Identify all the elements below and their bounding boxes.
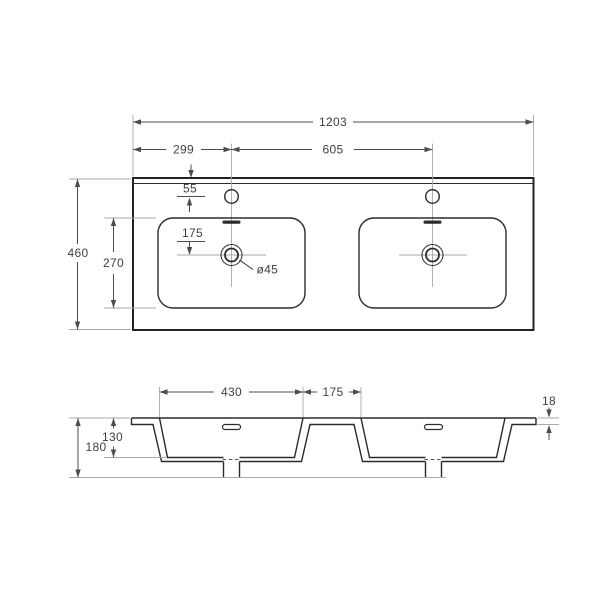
section-overflow-slot-left [223, 425, 241, 430]
dim-basin-width-and-gap: 430 175 [160, 385, 362, 417]
dim-basin-gap-label: 175 [323, 385, 344, 399]
dim-edge-thickness: 18 [538, 394, 560, 440]
overflow-slot-right [424, 221, 442, 224]
dim-overall-depth: 460 [68, 179, 131, 330]
countertop-outline [133, 178, 534, 330]
dim-faucet-to-drain-label: 175 [182, 226, 203, 240]
section-outer-profile [132, 418, 537, 478]
dim-faucet-spacing-label: 605 [323, 143, 344, 157]
dim-left-offset-label: 299 [173, 143, 194, 157]
technical-drawing: 1203 299 605 460 [0, 0, 600, 600]
drawing-canvas: 1203 299 605 460 [0, 0, 600, 600]
dim-overall-width-label: 1203 [319, 115, 347, 129]
dim-faucet-positions: 299 605 [133, 143, 433, 157]
dim-faucet-from-edge-label: 55 [183, 182, 197, 196]
section-overflow-slot-right [425, 425, 443, 430]
dim-basin-width-label: 430 [221, 385, 242, 399]
overflow-slot-left [223, 221, 241, 224]
section-view: 430 175 18 130 1 [69, 385, 559, 478]
dim-edge-thickness-label: 18 [542, 394, 556, 408]
dim-overall-depth-label: 460 [68, 246, 89, 260]
drain-diameter-label: ø45 [257, 263, 279, 277]
dim-overall-height-label: 180 [86, 440, 107, 454]
dim-basin-length-label: 270 [103, 256, 124, 270]
top-view: 1203 299 605 460 [68, 115, 534, 330]
dim-overall-height: 180 [69, 418, 446, 478]
